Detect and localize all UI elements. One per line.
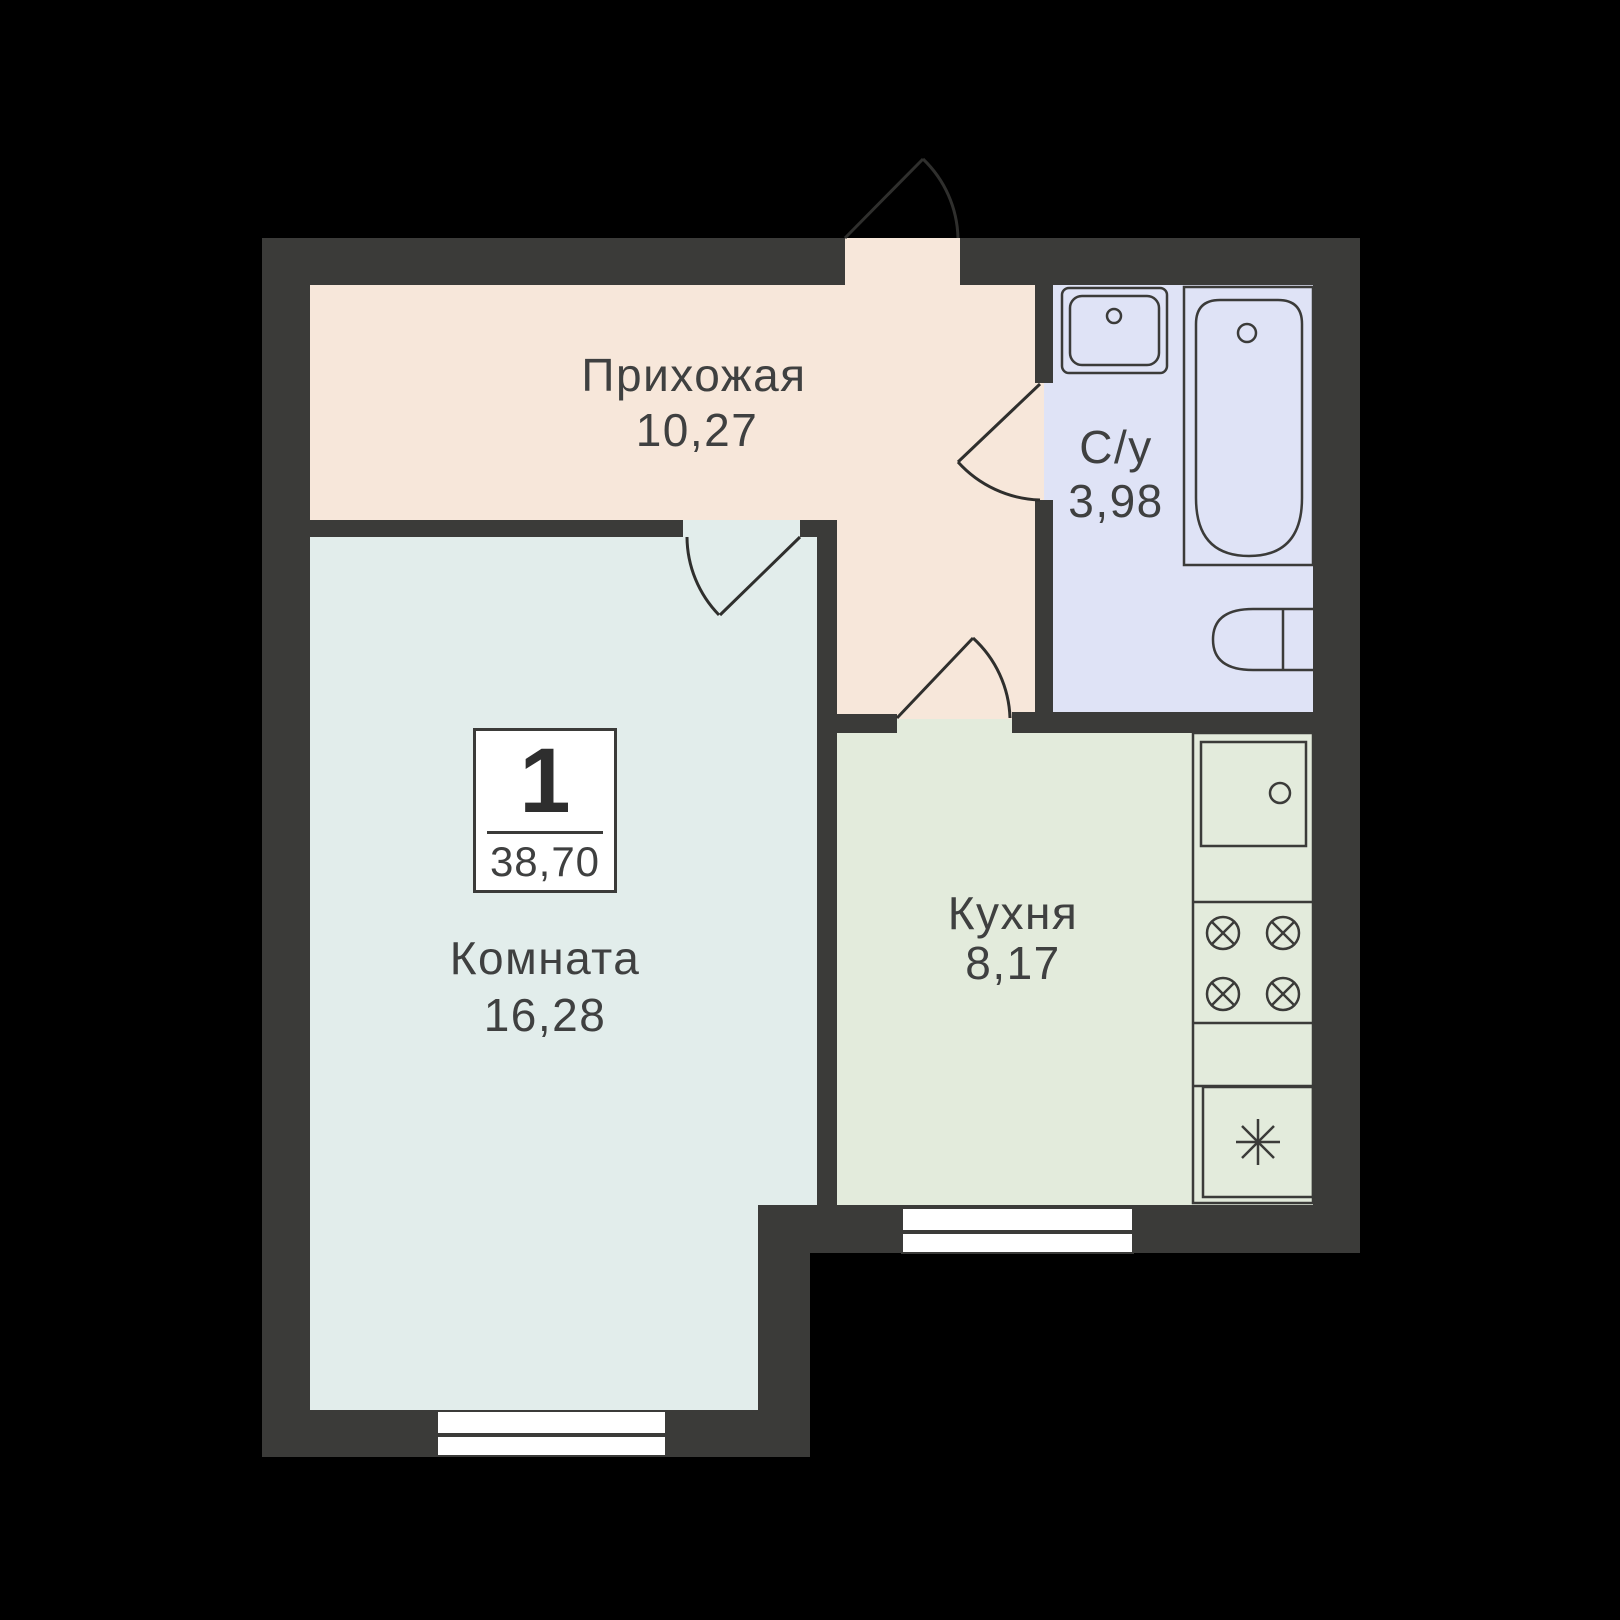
floor-plan-drawing: [0, 0, 1620, 1620]
kitchen-area: 8,17: [965, 936, 1061, 990]
hallway-label: Прихожая: [581, 348, 806, 402]
snowflake-icon: [1236, 1119, 1280, 1165]
unit-total-area: 38,70: [490, 838, 600, 886]
floor-plan: Прихожая 10,27 С/у 3,98 Комната 16,28 Ку…: [0, 0, 1620, 1620]
kitchen-label: Кухня: [948, 886, 1079, 940]
kitchen-window: [902, 1208, 1133, 1253]
living-room-window: [437, 1411, 666, 1456]
bathroom-label: С/у: [1079, 420, 1153, 474]
unit-number: 1: [519, 733, 570, 829]
unit-info-box: 1 38,70: [473, 728, 617, 893]
bathroom-area: 3,98: [1068, 474, 1164, 528]
kitchen-floor: [837, 719, 1313, 1205]
unit-divider: [487, 831, 603, 834]
entrance-door: [845, 159, 958, 238]
living-room-label: Комната: [450, 931, 641, 985]
living-room-area: 16,28: [484, 988, 607, 1042]
hallway-area: 10,27: [636, 403, 759, 457]
